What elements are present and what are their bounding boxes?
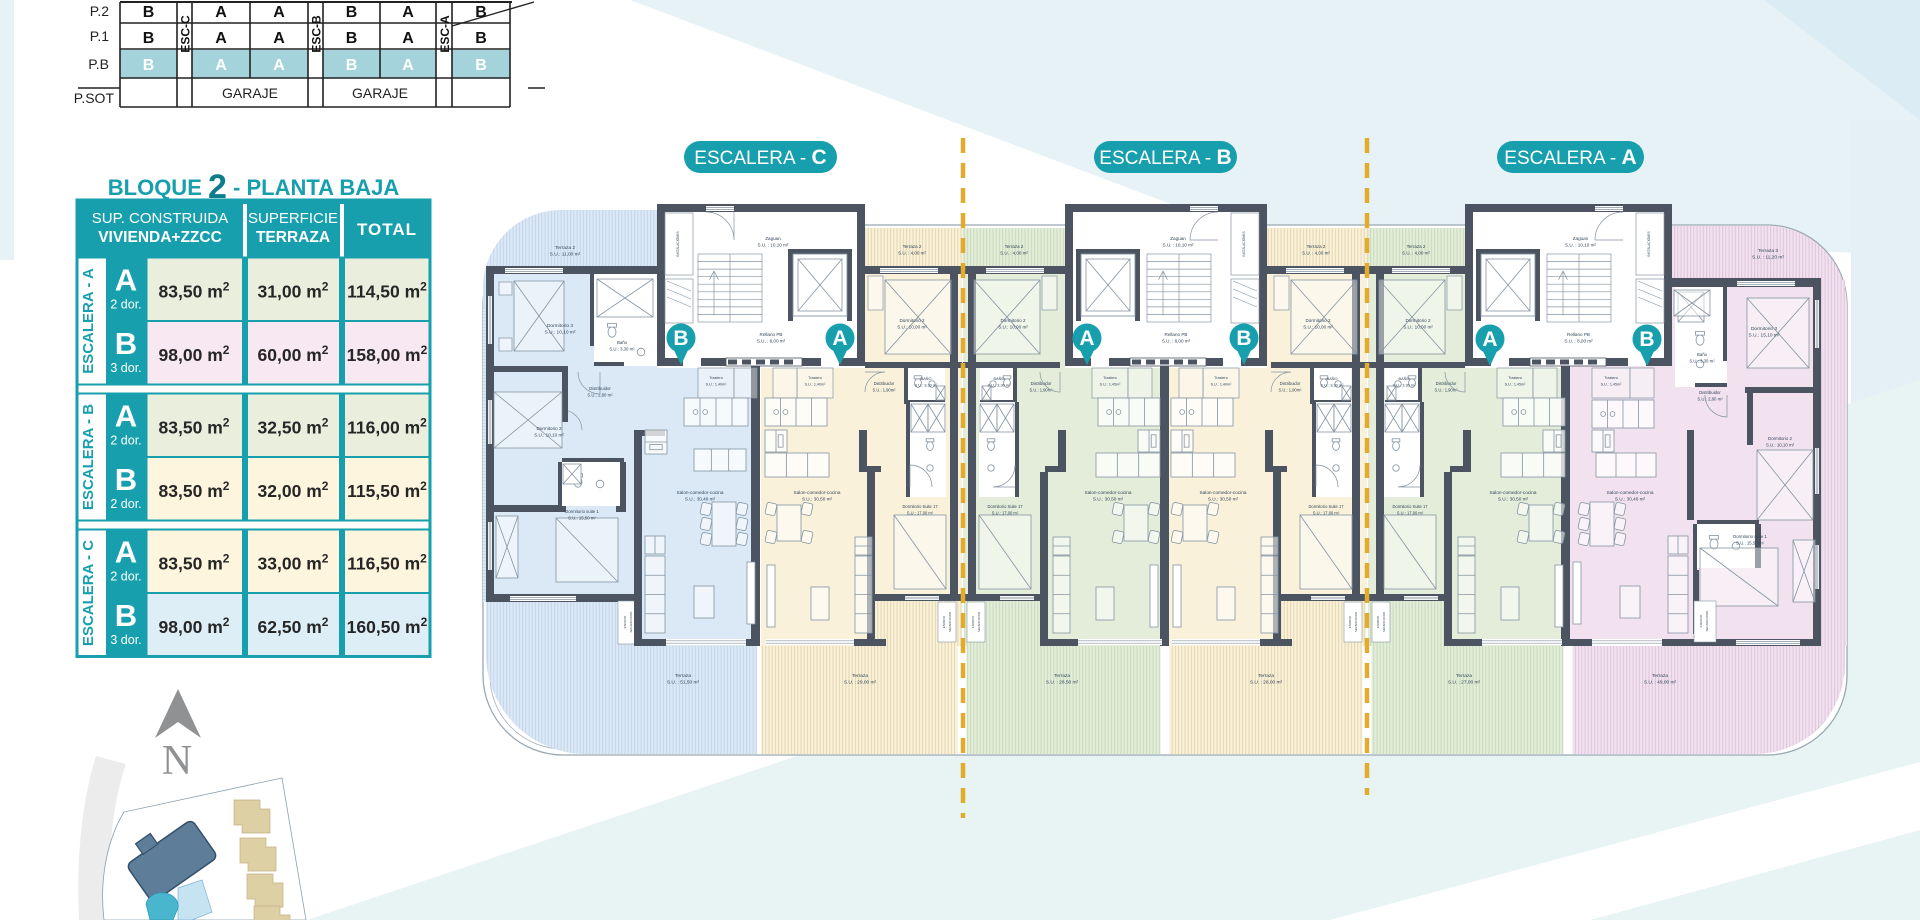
svg-text:A: A <box>402 4 414 21</box>
svg-text:114,50 m2: 114,50 m2 <box>347 280 427 302</box>
svg-text:Terraza 2: Terraza 2 <box>1407 244 1426 249</box>
svg-text:Zaguan: Zaguan <box>765 236 781 241</box>
svg-text:ESPACIO: ESPACIO <box>942 615 946 628</box>
svg-text:B: B <box>1236 327 1251 350</box>
svg-text:B: B <box>115 326 137 361</box>
svg-text:Distribuidor: Distribuidor <box>1280 381 1301 386</box>
svg-text:S.U. : 51,50 m²: S.U. : 51,50 m² <box>667 680 700 686</box>
svg-text:A: A <box>115 263 137 298</box>
svg-text:S.U. : 8,00 m²: S.U. : 8,00 m² <box>1564 339 1593 344</box>
svg-text:P.2: P.2 <box>90 3 109 19</box>
svg-text:Distribuidor: Distribuidor <box>1031 381 1052 386</box>
svg-text:Salon-comedor-cocina: Salon-comedor-cocina <box>677 490 724 495</box>
svg-text:SECADO ROPA: SECADO ROPA <box>629 611 633 632</box>
svg-text:ESCALERA - C: ESCALERA - C <box>80 540 97 646</box>
svg-text:Dormitorio 2: Dormitorio 2 <box>899 318 924 323</box>
svg-text:ESC-C: ESC-C <box>179 15 193 53</box>
svg-text:83,50 m2: 83,50 m2 <box>159 552 230 574</box>
svg-text:Dormitorio Suite 17: Dormitorio Suite 17 <box>987 504 1023 509</box>
svg-text:B: B <box>115 598 137 633</box>
svg-text:S.U.: 15,50 m²: S.U.: 15,50 m² <box>1736 541 1764 546</box>
svg-text:Rellano PB: Rellano PB <box>1567 332 1590 337</box>
svg-text:Baño: Baño <box>617 340 628 345</box>
svg-text:3 dor.: 3 dor. <box>110 361 141 375</box>
svg-text:S.U.: 17,00 m²: S.U.: 17,00 m² <box>1313 511 1340 516</box>
svg-text:158,00 m2: 158,00 m2 <box>347 343 428 365</box>
svg-text:S.U. : 49,00 m²: S.U. : 49,00 m² <box>1644 680 1677 686</box>
svg-text:S.U.: 3,30 m²: S.U.: 3,30 m² <box>609 347 635 352</box>
svg-text:S.U.: 17,00 m²: S.U.: 17,00 m² <box>907 511 934 516</box>
svg-text:B: B <box>475 57 487 74</box>
svg-text:INSTALACIONES: INSTALACIONES <box>1647 231 1651 256</box>
svg-text:Dormitorio 3: Dormitorio 3 <box>1751 326 1777 332</box>
svg-text:S.U.: 3,30 m²: S.U.: 3,30 m² <box>988 383 1012 388</box>
svg-text:A: A <box>273 57 285 74</box>
svg-text:Terraza: Terraza <box>1456 673 1472 679</box>
svg-text:B: B <box>346 57 358 74</box>
svg-text:S.U. : 8,00 m²: S.U. : 8,00 m² <box>757 339 786 344</box>
svg-text:A: A <box>832 327 847 350</box>
svg-text:S.U. : 11,20 m²: S.U. : 11,20 m² <box>1752 255 1784 261</box>
svg-text:Dormitorio suite 1: Dormitorio suite 1 <box>1733 534 1767 539</box>
svg-text:Dormitorio Suite 17: Dormitorio Suite 17 <box>902 504 938 509</box>
svg-text:S.U.: 3,30 m²: S.U.: 3,30 m² <box>915 383 939 388</box>
svg-text:TERRAZA: TERRAZA <box>256 229 330 246</box>
svg-text:S.U.: 1,40m²: S.U.: 1,40m² <box>706 383 727 387</box>
svg-text:S.U.: 1,90m²: S.U.: 1,90m² <box>1435 388 1459 393</box>
svg-text:SECADO ROPA: SECADO ROPA <box>948 612 952 632</box>
svg-text:BAÑO: BAÑO <box>1398 376 1409 381</box>
svg-text:ESCALERA - B: ESCALERA - B <box>80 404 97 510</box>
svg-text:BAÑO: BAÑO <box>920 376 931 381</box>
svg-text:B: B <box>143 4 155 21</box>
svg-text:SECADO ROPA: SECADO ROPA <box>977 612 981 632</box>
svg-text:S.U.: 30,40 m²: S.U.: 30,40 m² <box>1615 497 1646 502</box>
svg-text:83,50 m2: 83,50 m2 <box>159 479 230 501</box>
svg-text:S.U.: 17,00 m²: S.U.: 17,00 m² <box>1397 511 1424 516</box>
svg-text:TOTAL: TOTAL <box>357 220 417 239</box>
svg-text:S.U.: 15,50 m²: S.U.: 15,50 m² <box>568 516 596 521</box>
svg-text:B: B <box>346 30 358 47</box>
svg-text:B: B <box>143 30 155 47</box>
svg-text:SECADO ROPA: SECADO ROPA <box>1354 612 1358 632</box>
svg-text:S.U. : 4,00 m²: S.U. : 4,00 m² <box>898 251 926 256</box>
svg-text:B: B <box>673 327 688 350</box>
svg-text:62,50 m2: 62,50 m2 <box>258 615 329 637</box>
svg-text:S.U.: 3,30 m²: S.U.: 3,30 m² <box>1393 383 1417 388</box>
svg-text:A: A <box>215 4 227 21</box>
svg-text:INSTALACIONES: INSTALACIONES <box>676 231 680 256</box>
svg-text:S.U.: 30,50 m²: S.U.: 30,50 m² <box>1208 497 1239 502</box>
svg-text:N: N <box>162 738 192 784</box>
svg-text:A: A <box>1482 328 1497 351</box>
svg-text:ESPACIO: ESPACIO <box>1699 614 1703 627</box>
svg-text:S.U.: 30,50 m²: S.U.: 30,50 m² <box>1498 497 1529 502</box>
svg-text:S.U.: 1,45m²: S.U.: 1,45m² <box>1601 383 1622 387</box>
svg-text:60,00 m2: 60,00 m2 <box>258 343 329 365</box>
svg-text:S.U.: 2,80 m²: S.U.: 2,80 m² <box>1697 397 1723 402</box>
svg-text:Salon-comedor-cocina: Salon-comedor-cocina <box>794 490 841 495</box>
svg-text:Terraza: Terraza <box>1258 673 1274 679</box>
svg-text:Terraza 2: Terraza 2 <box>1005 244 1024 249</box>
svg-text:Dormitorio 2: Dormitorio 2 <box>1405 318 1430 323</box>
svg-text:S.U. : 28,50 m²: S.U. : 28,50 m² <box>1046 680 1079 686</box>
svg-text:3 dor.: 3 dor. <box>110 633 141 647</box>
svg-text:S.U.: 1,45m²: S.U.: 1,45m² <box>1100 383 1121 387</box>
svg-text:Dormitorio 2: Dormitorio 2 <box>1000 318 1025 323</box>
svg-text:ESPACIO: ESPACIO <box>623 615 627 628</box>
svg-text:B: B <box>475 30 487 47</box>
svg-text:98,00 m2: 98,00 m2 <box>159 615 230 637</box>
svg-text:Salon-comedor-cocina: Salon-comedor-cocina <box>1490 490 1537 495</box>
svg-text:Distribuidor: Distribuidor <box>1436 381 1457 386</box>
svg-text:BAÑO: BAÑO <box>993 376 1004 381</box>
svg-text:P.1: P.1 <box>90 28 109 44</box>
svg-text:SECADO ROPA: SECADO ROPA <box>1705 610 1709 631</box>
svg-text:S.U.: 17,00 m²: S.U.: 17,00 m² <box>992 511 1019 516</box>
svg-text:32,50 m2: 32,50 m2 <box>258 416 329 438</box>
svg-text:Distribuidor: Distribuidor <box>874 381 895 386</box>
svg-text:Dormitorio 2: Dormitorio 2 <box>1768 436 1792 441</box>
svg-text:S.U.: 1,90m²: S.U.: 1,90m² <box>1279 388 1303 393</box>
svg-text:S.U.: 30,40 m²: S.U.: 30,40 m² <box>685 497 716 502</box>
svg-text:115,50 m2: 115,50 m2 <box>347 479 427 501</box>
svg-text:VIVIENDA+ZZCC: VIVIENDA+ZZCC <box>98 229 222 246</box>
svg-text:S.U.: 10,00 m²: S.U.: 10,00 m² <box>1403 325 1433 330</box>
svg-text:ESCALERA - B: ESCALERA - B <box>1099 146 1231 169</box>
svg-text:P.SOT: P.SOT <box>74 90 115 106</box>
svg-text:S.U.: 10,00 m²: S.U.: 10,00 m² <box>1303 325 1333 330</box>
svg-text:ESCALERA - C: ESCALERA - C <box>694 146 826 169</box>
svg-text:S.U. : 28,00 m²: S.U. : 28,00 m² <box>1250 680 1283 686</box>
svg-text:B: B <box>115 462 137 497</box>
svg-text:Terraza 2: Terraza 2 <box>1307 244 1326 249</box>
svg-text:Terraza 3: Terraza 3 <box>1758 248 1778 254</box>
svg-text:Terraza 2: Terraza 2 <box>903 244 922 249</box>
svg-text:S.U. : 4,00 m²: S.U. : 4,00 m² <box>1000 251 1028 256</box>
svg-text:S.U.: 1,90m²: S.U.: 1,90m² <box>1030 388 1054 393</box>
svg-text:83,50 m2: 83,50 m2 <box>159 280 230 302</box>
svg-text:SECADO ROPA: SECADO ROPA <box>1382 612 1386 632</box>
svg-text:S.U.: 15,10 m²: S.U.: 15,10 m² <box>1749 333 1780 339</box>
svg-text:Salon-comedor-cocina: Salon-comedor-cocina <box>1085 490 1132 495</box>
svg-text:Zaguan: Zaguan <box>1170 236 1186 241</box>
svg-text:S.U. : 4,00 m²: S.U. : 4,00 m² <box>1302 251 1330 256</box>
svg-text:B: B <box>1639 328 1654 351</box>
svg-text:Dormitorio Suite 17: Dormitorio Suite 17 <box>1308 504 1344 509</box>
svg-text:Terraza: Terraza <box>675 673 691 679</box>
svg-text:Dormitorio 2: Dormitorio 2 <box>1305 318 1330 323</box>
svg-text:A: A <box>1079 327 1094 350</box>
svg-text:ESC-B: ESC-B <box>310 15 324 53</box>
svg-text:ESPACIO: ESPACIO <box>971 615 975 628</box>
svg-text:ESCALERA - A: ESCALERA - A <box>80 268 97 374</box>
svg-text:GARAJE: GARAJE <box>222 85 278 101</box>
svg-text:S.U.: 30,50 m²: S.U.: 30,50 m² <box>1093 497 1124 502</box>
svg-text:Dormitorio Suite 17: Dormitorio Suite 17 <box>1392 504 1428 509</box>
svg-text:Terraza 2: Terraza 2 <box>555 245 575 251</box>
svg-text:S.U.: 10,10 m²: S.U.: 10,10 m² <box>545 330 576 336</box>
svg-text:S.U.: 1,90m²: S.U.: 1,90m² <box>873 388 897 393</box>
svg-text:Salon-comedor-cocina: Salon-comedor-cocina <box>1607 490 1654 495</box>
svg-text:Salon-comedor-cocina: Salon-comedor-cocina <box>1200 490 1247 495</box>
svg-text:P.B: P.B <box>88 56 109 72</box>
svg-text:A: A <box>273 30 285 47</box>
svg-text:33,00 m2: 33,00 m2 <box>258 552 329 574</box>
svg-text:Dormitorio 3: Dormitorio 3 <box>547 323 573 329</box>
svg-text:Zaguan: Zaguan <box>1573 236 1589 241</box>
svg-text:32,00 m2: 32,00 m2 <box>258 479 329 501</box>
svg-text:S.U. : 8,00 m²: S.U. : 8,00 m² <box>1162 339 1191 344</box>
svg-text:A: A <box>402 57 414 74</box>
svg-text:B: B <box>475 4 487 21</box>
svg-text:S.U. : 4,00 m²: S.U. : 4,00 m² <box>1402 251 1430 256</box>
svg-text:Trastero: Trastero <box>808 376 822 380</box>
svg-text:Baño: Baño <box>1697 352 1708 357</box>
svg-text:Dormitorio suite 1: Dormitorio suite 1 <box>565 509 599 514</box>
svg-text:S.U. : 29,00 m²: S.U. : 29,00 m² <box>844 680 877 686</box>
svg-text:Distribuidor: Distribuidor <box>1699 390 1721 395</box>
svg-text:83,50 m2: 83,50 m2 <box>159 416 230 438</box>
svg-text:S.U.: 11,00 m²: S.U.: 11,00 m² <box>550 252 581 258</box>
svg-text:Trastero: Trastero <box>1214 376 1228 380</box>
svg-text:116,00 m2: 116,00 m2 <box>347 416 427 438</box>
svg-text:A: A <box>273 4 285 21</box>
svg-text:Terraza: Terraza <box>1652 673 1668 679</box>
svg-text:160,50 m2: 160,50 m2 <box>347 615 428 637</box>
svg-text:A: A <box>115 399 137 434</box>
svg-text:A: A <box>402 30 414 47</box>
svg-text:Rellano PB: Rellano PB <box>760 332 783 337</box>
svg-text:S.U.: 1,40m²: S.U.: 1,40m² <box>805 383 826 387</box>
svg-text:S.U.: 10,00 m²: S.U.: 10,00 m² <box>998 325 1028 330</box>
svg-text:ESCALERA - A: ESCALERA - A <box>1504 146 1636 169</box>
svg-text:SUP. CONSTRUIDA: SUP. CONSTRUIDA <box>92 210 228 227</box>
svg-text:S.U.: 3,30 m²: S.U.: 3,30 m² <box>1321 383 1345 388</box>
svg-text:S.U.: 10,10 m²: S.U.: 10,10 m² <box>534 433 564 438</box>
svg-text:Trastero: Trastero <box>1604 376 1618 380</box>
svg-text:S.U. : 10,10 m²: S.U. : 10,10 m² <box>1565 243 1596 248</box>
svg-text:S.U.: 1,45m²: S.U.: 1,45m² <box>1505 383 1526 387</box>
svg-text:S.U.: 3,30 m²: S.U.: 3,30 m² <box>1689 359 1715 364</box>
svg-text:Trastero: Trastero <box>1508 376 1522 380</box>
svg-text:S.U.: 1,40m²: S.U.: 1,40m² <box>1211 383 1232 387</box>
svg-text:S.U. : 10,10 m²: S.U. : 10,10 m² <box>1163 243 1194 248</box>
svg-text:Trastero: Trastero <box>1103 376 1117 380</box>
svg-text:2 dor.: 2 dor. <box>110 570 141 584</box>
svg-text:116,50 m2: 116,50 m2 <box>347 552 427 574</box>
svg-text:Trastero: Trastero <box>709 376 723 380</box>
svg-text:Terraza: Terraza <box>1054 673 1070 679</box>
svg-text:A: A <box>215 30 227 47</box>
svg-text:Terraza: Terraza <box>852 673 868 679</box>
svg-text:A: A <box>115 535 137 570</box>
svg-text:98,00 m2: 98,00 m2 <box>159 343 230 365</box>
svg-text:2 dor.: 2 dor. <box>110 298 141 312</box>
svg-text:B: B <box>143 57 155 74</box>
svg-text:S.U.: 10,00 m²: S.U.: 10,00 m² <box>897 325 927 330</box>
svg-text:Rellano PB: Rellano PB <box>1165 332 1188 337</box>
svg-text:B: B <box>346 4 358 21</box>
svg-text:S.U. : 10,10 m²: S.U. : 10,10 m² <box>758 243 789 248</box>
svg-text:S.U. : 27,00 m²: S.U. : 27,00 m² <box>1448 680 1481 686</box>
svg-text:INSTALACIONES: INSTALACIONES <box>1242 231 1246 256</box>
svg-text:S.U.: 10,10 m²: S.U.: 10,10 m² <box>1766 443 1795 448</box>
svg-text:SUPERFICIE: SUPERFICIE <box>248 210 338 227</box>
svg-text:2 dor.: 2 dor. <box>110 434 141 448</box>
svg-text:BAÑO: BAÑO <box>1326 376 1337 381</box>
svg-text:2 dor.: 2 dor. <box>110 497 141 511</box>
svg-text:A: A <box>215 57 227 74</box>
svg-text:ESPACIO: ESPACIO <box>1376 615 1380 628</box>
svg-text:ESC-A: ESC-A <box>438 15 452 53</box>
svg-text:S.U.: 30,50 m²: S.U.: 30,50 m² <box>802 497 833 502</box>
svg-text:31,00 m2: 31,00 m2 <box>258 280 329 302</box>
svg-text:ESPACIO: ESPACIO <box>1348 615 1352 628</box>
svg-text:GARAJE: GARAJE <box>352 85 408 101</box>
svg-text:Dormitorio 2: Dormitorio 2 <box>536 426 561 431</box>
